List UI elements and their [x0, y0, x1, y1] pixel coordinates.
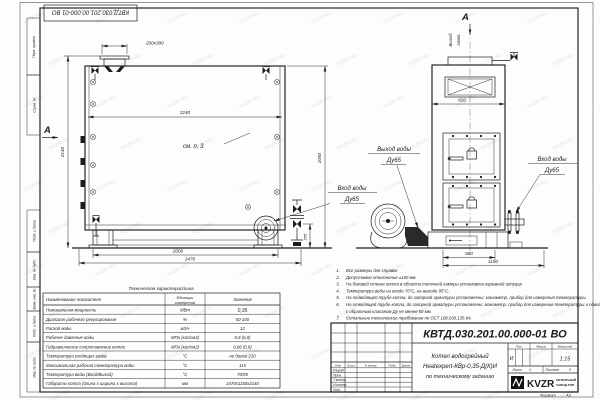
spec-table-title: Техническая характеристика	[128, 286, 193, 291]
margin-label-inv-dubl: Инв. № дубл.	[33, 259, 37, 280]
inspection-window	[445, 77, 495, 97]
front-view: 200х390 2240 см. п. 3	[42, 41, 377, 267]
label-gas-out-1: Выход	[448, 33, 453, 47]
row-prov: Пров.	[333, 373, 342, 377]
svg-text:Расход воды: Расход воды	[46, 326, 72, 331]
svg-text:Рабочее давление воды: Рабочее давление воды	[46, 335, 95, 340]
svg-text:измерения: измерения	[175, 300, 196, 305]
lit-value: И	[510, 356, 514, 362]
watermark-text: KVZR.RU	[552, 52, 575, 67]
watermark-text: KVZR.RU	[192, 220, 215, 235]
svg-text:2470х1150х2140: 2470х1150х2140	[225, 381, 259, 386]
col-value: Значение	[233, 297, 252, 302]
watermark-text: KVZR.RU	[454, 178, 477, 193]
svg-text:6.: 6.	[336, 302, 340, 307]
svg-text:Максимальная рабочая температу: Максимальная рабочая температура воды	[46, 363, 135, 368]
svg-text:3.: 3.	[336, 282, 340, 287]
dim-depth: 1150	[488, 259, 498, 264]
watermark-text: KVZR.RU	[94, 262, 117, 277]
watermark-text: KVZR.RU	[336, 52, 359, 67]
row-razrab: Разраб.	[333, 369, 345, 373]
margin-label-podp1: Подп. и дата	[33, 220, 37, 241]
note-text: На отводящей трубе котла, до запорной ар…	[346, 302, 600, 307]
note-text: Допустимое отклонение ±100 мм.	[345, 275, 417, 280]
margin-label-podp2: Подп. и дата	[33, 316, 37, 337]
dim-inlet-height: 255	[303, 233, 308, 241]
section-arrow-a-front: А	[42, 125, 58, 138]
watermark-text: KVZR.RU	[310, 94, 333, 109]
watermark-text: KVZR.RU	[552, 136, 575, 151]
watermark-text: KVZR.RU	[166, 94, 189, 109]
svg-text:°С: °С	[183, 354, 189, 359]
svg-text:2.: 2.	[335, 275, 340, 280]
svg-text:МВт: МВт	[180, 308, 190, 313]
sheet-label: Лист	[511, 368, 522, 372]
spec-row: Расход воды м3/ч 12	[46, 326, 245, 331]
margin-label-vzam: Взам. инв. №	[33, 288, 37, 309]
svg-text:70/95: 70/95	[237, 372, 248, 377]
spec-row: Гидравлическое сопротивление котла МПа (…	[46, 344, 252, 349]
watermark-text: KVZR.RU	[310, 262, 333, 277]
chimney-stub	[100, 56, 129, 72]
view-label-a: А	[461, 12, 470, 35]
dim-length-total: 2470	[184, 257, 196, 262]
svg-text:4.: 4.	[336, 288, 340, 293]
watermark-text: KVZR.RU	[480, 388, 503, 400]
logo-text: KVZR	[527, 379, 555, 390]
watermark-text: KVZR.RU	[238, 94, 261, 109]
watermark-text: KVZR.RU	[382, 346, 405, 361]
watermark-text: KVZR.RU	[408, 136, 431, 151]
sheets-value: 2	[568, 368, 571, 372]
col-izm: Изм	[335, 363, 342, 367]
side-view: А Выход газов 820	[356, 12, 577, 268]
spec-row: Максимальная рабочая температура воды °С…	[46, 363, 247, 368]
watermark-text: KVZR.RU	[480, 136, 503, 151]
svg-text:0,6 (6,0): 0,6 (6,0)	[234, 335, 251, 340]
svg-text:не более 220: не более 220	[229, 354, 256, 359]
watermark-text: KVZR.RU	[94, 178, 117, 193]
svg-text:Гидравлическое сопротивление к: Гидравлическое сопротивление котла	[46, 344, 126, 349]
lock-icon	[467, 197, 477, 208]
svg-text:Температура уходящих газов: Температура уходящих газов	[46, 354, 107, 359]
col-list: Лист	[346, 363, 355, 367]
row-utv: Утв.	[333, 388, 341, 392]
margin-column: Перв. примен. Справ. № Подп. и дата Инв.…	[27, 18, 40, 392]
fan-mount-flange	[254, 216, 278, 240]
dim-base: 580	[465, 251, 473, 256]
watermark-text: KVZR.RU	[454, 262, 477, 277]
lock-icon	[467, 148, 477, 159]
air-valve-right	[262, 67, 270, 81]
title-block: Изм Лист N докум. Подп. Дата Разраб. Про…	[331, 323, 578, 392]
watermark-text: KVZR.RU	[526, 262, 549, 277]
doc-number-flipped: КВТД.030.201.00.000-01 ВО	[52, 9, 129, 15]
svg-text:1.: 1.	[336, 268, 340, 273]
margin-label-sprav: Справ. №	[33, 97, 37, 113]
label-gas-out-2: газов	[456, 34, 461, 46]
watermark-text: KVZR.RU	[120, 388, 143, 400]
watermark-text: KVZR.RU	[480, 220, 503, 235]
company-logo: KVZR КОТЕЛЬНЫЙ ЗАВОД РЭП	[511, 376, 577, 390]
svg-text:А: А	[43, 125, 51, 136]
watermark-text: KVZR.RU	[192, 388, 215, 400]
watermark-text: KVZR.RU	[166, 262, 189, 277]
watermark-text: KVZR.RU	[552, 220, 575, 235]
svg-text:5.: 5.	[336, 295, 340, 300]
note-text: с обратным клапаном Ду не менее 50 мм.	[346, 309, 432, 314]
watermark-text: KVZR.RU	[238, 262, 261, 277]
watermark-text: KVZR.RU	[22, 178, 45, 193]
svg-text:м3/ч: м3/ч	[181, 326, 191, 331]
spec-row: Номинальная мощность МВт 0,35	[46, 308, 248, 314]
company-line1: КОТЕЛЬНЫЙ	[556, 378, 577, 382]
margin-label-inv-podl: Инв. № подл.	[33, 356, 37, 377]
watermark-text: KVZR.RU	[94, 94, 117, 109]
svg-text:Ду65: Ду65	[544, 168, 560, 174]
svg-text:МПа (кгс/см2): МПа (кгс/см2)	[171, 344, 200, 349]
svg-text:мм: мм	[182, 381, 188, 386]
watermark-text: KVZR.RU	[408, 52, 431, 67]
col-doc: N докум.	[365, 363, 378, 367]
watermark-text: KVZR.RU	[336, 220, 359, 235]
svg-text:0,06 (0,6): 0,06 (0,6)	[233, 344, 252, 349]
top-doc-number-box: КВТД.030.201.00.000-01 ВО	[44, 5, 137, 21]
svg-text:Ду65: Ду65	[386, 158, 402, 164]
svg-text:МПа (кгс/см2): МПа (кгс/см2)	[171, 335, 200, 340]
svg-text:12: 12	[240, 326, 245, 331]
watermark-text: KVZR.RU	[120, 304, 143, 319]
col-podp: Подп.	[388, 363, 396, 367]
dim-width-inner: 2240	[179, 110, 191, 115]
watermark-text: KVZR.RU	[264, 220, 287, 235]
note-text: Все размеры для справок	[346, 268, 398, 273]
watermark-text: KVZR.RU	[310, 178, 333, 193]
watermark-text: KVZR.RU	[48, 220, 71, 235]
note-text: Температура воды на входе 70°С, на выход…	[346, 288, 449, 293]
dim-height-total: 2140	[60, 146, 65, 158]
massa-label: Масса	[536, 345, 545, 349]
watermark-text: KVZR.RU	[238, 10, 261, 25]
watermark-text: KVZR.RU	[310, 10, 333, 25]
scale-label: Масштаб	[558, 345, 573, 349]
spec-row: Габариты котла (длина х ширина х высота)…	[46, 381, 259, 386]
sheets-label: Листов	[544, 368, 559, 372]
watermark-text: KVZR.RU	[120, 136, 143, 151]
watermark-text: KVZR.RU	[526, 94, 549, 109]
base-plinth	[428, 232, 508, 248]
spec-row: Диапазон рабочего регулирования % 50-100	[45, 317, 250, 322]
product-name-3: по техническому заданию	[426, 374, 494, 380]
drain-valve	[93, 216, 100, 237]
boiler-assembly-drawing: KVZR.RUKVZR.RUKVZR.RUKVZR.RUKVZR.RUKVZR.…	[0, 0, 600, 400]
spec-row: Температура уходящих газов °С не более 2…	[46, 354, 256, 359]
svg-text:Формат: Формат	[540, 393, 557, 398]
supports	[89, 230, 282, 248]
watermark-text: KVZR.RU	[408, 388, 431, 400]
watermark-text: KVZR.RU	[192, 304, 215, 319]
watermark-text: KVZR.RU	[336, 136, 359, 151]
row-tkontr: Т.контр.	[333, 378, 347, 382]
watermark-text: KVZR.RU	[526, 10, 549, 25]
watermark-text: KVZR.RU	[382, 10, 405, 25]
svg-text:Диапазон рабочего регулировани: Диапазон рабочего регулирования	[45, 317, 117, 322]
svg-text:0,35: 0,35	[238, 308, 248, 314]
watermark-text: KVZR.RU	[382, 94, 405, 109]
product-name-1: Котел водогрейный	[431, 353, 489, 360]
watermark-text: KVZR.RU	[48, 52, 71, 67]
svg-text:Вход воды: Вход воды	[537, 157, 567, 163]
svg-text:Габариты котла (длина х ширина: Габариты котла (длина х ширина х высота)	[46, 381, 138, 386]
note-text: На подводящей трубе котла, до запорной а…	[346, 295, 587, 300]
note-text: Остальные технические требования по ОСТ …	[346, 316, 472, 321]
air-valve-left	[91, 67, 99, 81]
svg-text:50-100: 50-100	[236, 317, 250, 322]
drawing-sheet: KVZR.RUKVZR.RUKVZR.RUKVZR.RUKVZR.RUKVZR.…	[0, 0, 600, 400]
format-note: Формат А3	[540, 393, 572, 398]
col-name: Наименование показателя	[46, 297, 102, 302]
product-name-2: Heatexpert-КВр-0,35-Д(К)И	[423, 364, 498, 370]
watermark-text: KVZR.RU	[120, 220, 143, 235]
watermark-text: KVZR.RU	[526, 178, 549, 193]
note-text: На боковой стенке котла в области топочн…	[346, 282, 523, 287]
spec-row: Рабочее давление воды МПа (кгс/см2) 0,6 …	[46, 335, 251, 340]
svg-text:°С: °С	[183, 363, 189, 368]
doc-number: КВТД.030.201.00.000-01 ВО	[423, 329, 567, 341]
dim-width: 820	[458, 98, 466, 103]
svg-text:Выход воды: Выход воды	[377, 147, 411, 153]
col-data: Дата	[401, 363, 410, 367]
watermark-text: KVZR.RU	[264, 304, 287, 319]
svg-text:°С: °С	[183, 372, 189, 377]
lower-door	[443, 183, 500, 227]
row-nkontr: Н.контр.	[333, 383, 347, 387]
svg-text:А3: А3	[565, 393, 572, 398]
watermark-text: KVZR.RU	[166, 178, 189, 193]
watermark-text: KVZR.RU	[382, 178, 405, 193]
svg-text:115: 115	[239, 363, 246, 368]
sheet-value: 1	[529, 368, 531, 372]
dim-supports: 2000	[172, 249, 184, 254]
svg-text:Вход воды: Вход воды	[337, 186, 367, 192]
svg-text:Ду65: Ду65	[344, 197, 360, 203]
dim-height-body: 2050	[317, 152, 322, 164]
spec-row: Температура воды (Вход/Выход) °С 70/95	[46, 372, 248, 377]
note-ref: см. п. 3	[183, 144, 204, 150]
margin-label-perv: Перв. примен.	[32, 35, 36, 58]
watermark-text: KVZR.RU	[166, 10, 189, 25]
dim-chimney: 200х390	[145, 41, 164, 46]
scale-value: 1:15	[560, 357, 572, 363]
svg-text:7.: 7.	[336, 316, 340, 321]
svg-text:А: А	[461, 12, 469, 23]
watermark-text: KVZR.RU	[264, 388, 287, 400]
label-inlet-front: Вход воды Ду65	[274, 186, 377, 221]
svg-text:Температура воды (Вход/Выход): Температура воды (Вход/Выход)	[46, 372, 113, 377]
watermark-text: KVZR.RU	[310, 346, 333, 361]
watermark-text: KVZR.RU	[48, 388, 71, 400]
svg-text:Номинальная мощность: Номинальная мощность	[46, 308, 97, 313]
watermark-text: KVZR.RU	[238, 178, 261, 193]
company-line2: ЗАВОД РЭП	[556, 383, 575, 387]
svg-text:%: %	[183, 317, 187, 322]
lit-label: Лит	[515, 345, 523, 349]
spec-table: Техническая характеристика Наименование …	[43, 286, 280, 388]
